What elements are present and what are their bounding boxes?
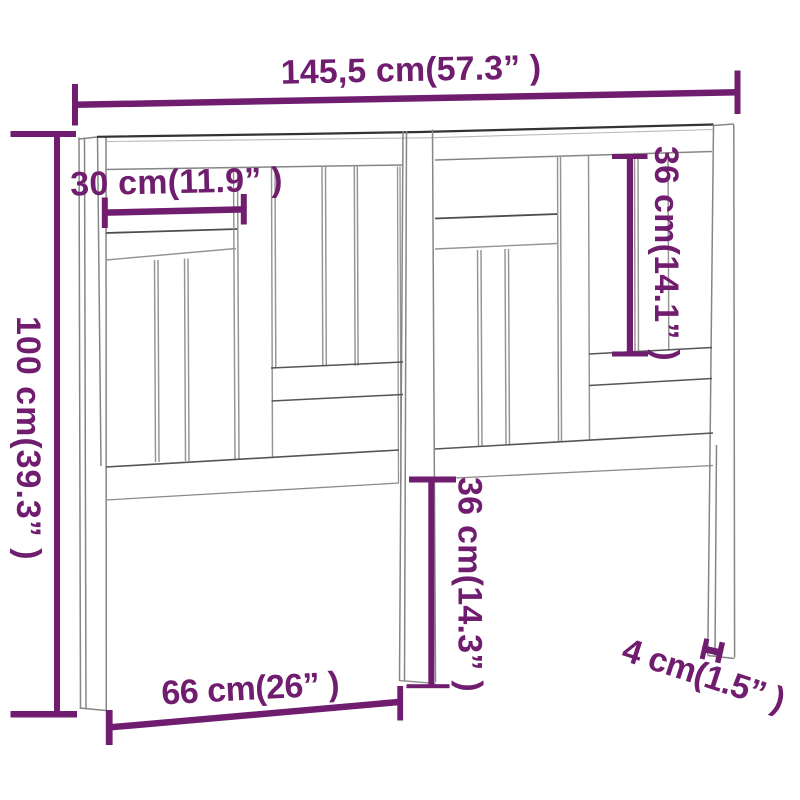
svg-text:36 cm(14.1” ): 36 cm(14.1” ) xyxy=(647,146,685,361)
svg-text:30 cm(11.9” ): 30 cm(11.9” ) xyxy=(70,161,283,204)
svg-text:100 cm(39.3” ): 100 cm(39.3” ) xyxy=(9,316,47,561)
svg-text:36 cm(14.3” ): 36 cm(14.3” ) xyxy=(451,477,489,692)
svg-text:145,5 cm(57.3” ): 145,5 cm(57.3” ) xyxy=(280,48,541,91)
